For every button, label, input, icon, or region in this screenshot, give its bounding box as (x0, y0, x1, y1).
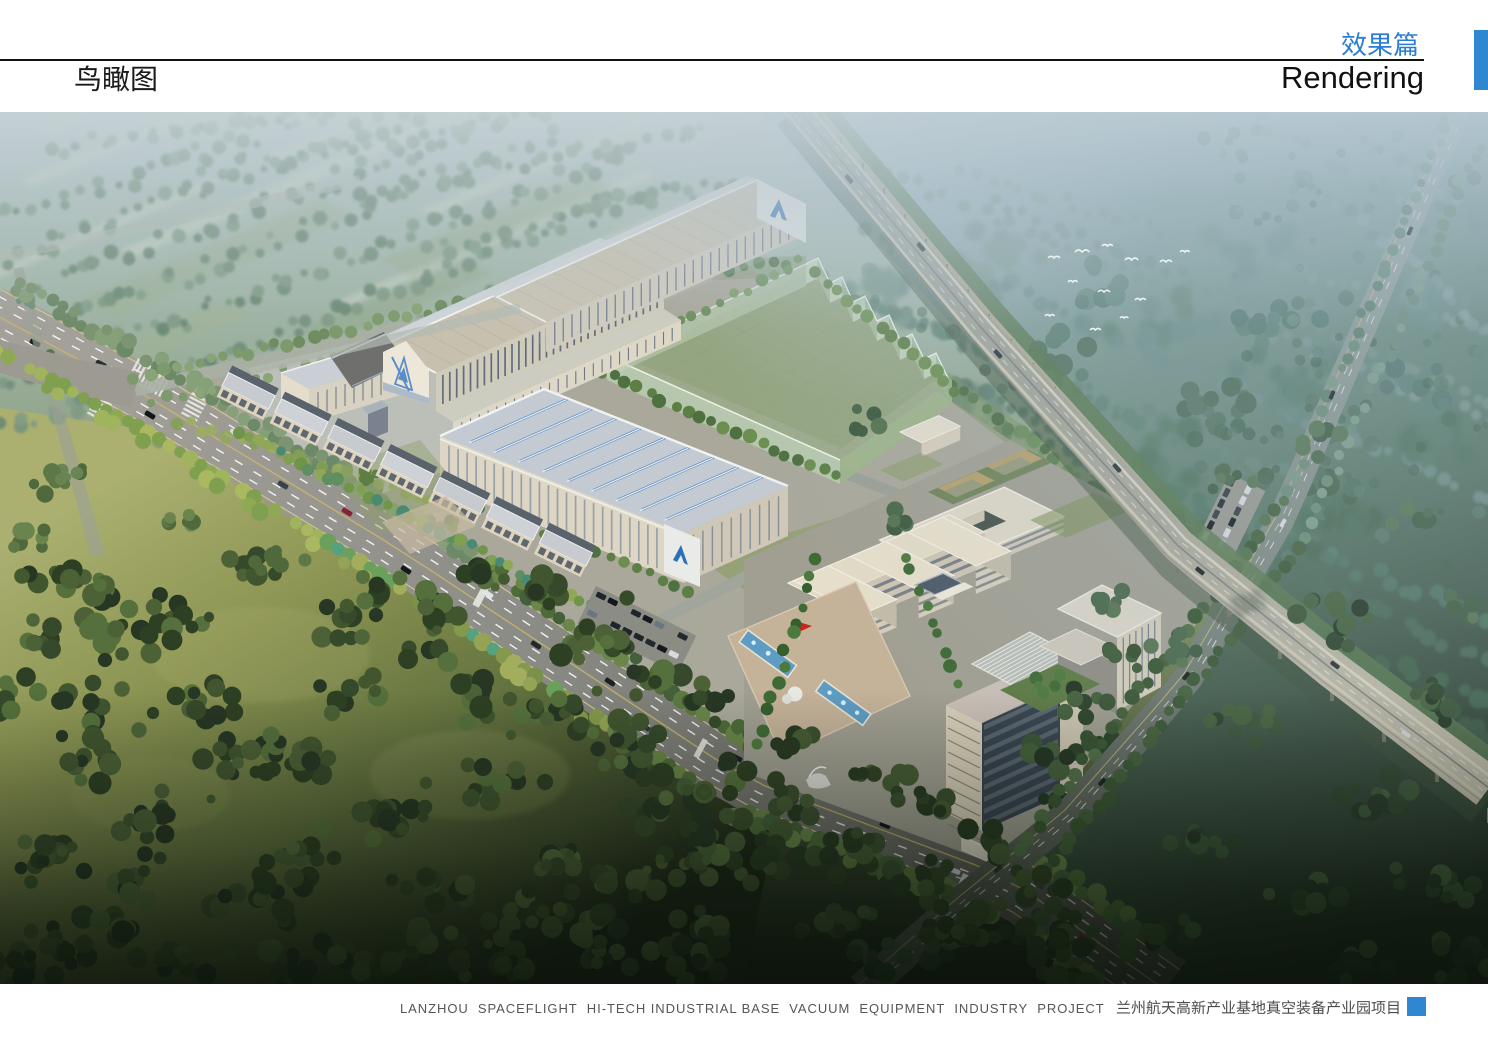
svg-text:LANZHOU SPACEFLIGHT HI-TECH: LANZHOU SPACEFLIGHT HI-TECH INDUSTRIAL B… (400, 1001, 1105, 1016)
